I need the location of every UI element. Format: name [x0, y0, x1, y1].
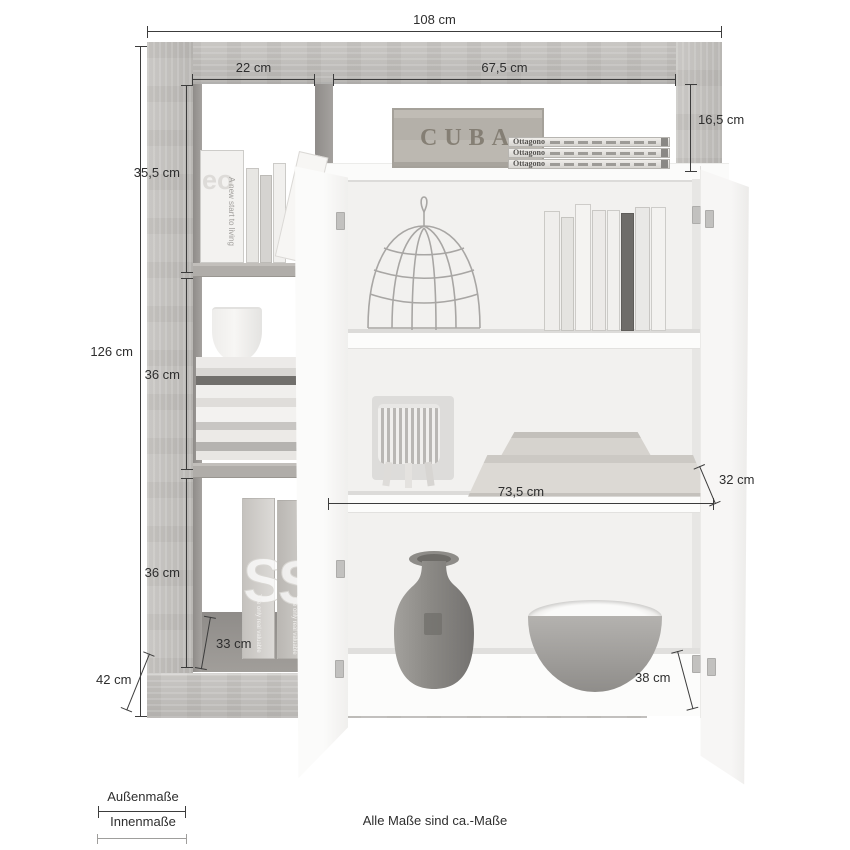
door-hinge: [336, 560, 345, 578]
magazine-issue-block: [661, 160, 668, 168]
book-spine: [635, 207, 650, 331]
door-hinge: [705, 210, 714, 228]
book-spine: [592, 210, 606, 331]
magazine: Ottagono: [508, 137, 670, 147]
dim-section-top-height-line: [186, 85, 187, 273]
dim-section-middle-height-label: 36 cm: [120, 367, 180, 382]
book-spine: [575, 204, 591, 331]
magazine-pile: Ottagono Ottagono Ottagono: [508, 137, 670, 170]
dim-height-total-label: 126 cm: [75, 344, 133, 359]
magazine: Ottagono: [508, 159, 670, 169]
magazine-issue-block: [661, 149, 668, 157]
book-group-shelf-top: [544, 202, 676, 331]
dim-left-column-width-line: [192, 79, 315, 80]
book-spine-dark: [621, 213, 634, 331]
magazine-text-lines: [550, 141, 656, 144]
dim-section-middle-height-line: [186, 278, 187, 470]
door-hinge: [707, 658, 716, 676]
dim-left-shelf-depth-label: 33 cm: [216, 636, 251, 651]
legend-outer-label: Außenmaße: [98, 789, 188, 804]
dim-niche-height-line: [690, 84, 691, 172]
dim-bottom-shelf-depth-label: 38 cm: [635, 670, 670, 685]
footnote: Alle Maße sind ca.-Maße: [300, 813, 570, 828]
book-spine: [260, 175, 272, 263]
wire-cloche: [358, 182, 490, 334]
dim-left-column-width-label: 22 cm: [192, 60, 315, 75]
cabinet-right-wall: [692, 179, 700, 657]
magazine-text-lines: [550, 163, 656, 166]
door-hinge: [336, 212, 345, 230]
cup: [212, 307, 262, 361]
magazine-issue-block: [661, 138, 668, 146]
dim-shelf-depth-label: 32 cm: [719, 472, 754, 487]
tall-book: S The only real valuable: [242, 498, 275, 659]
legend-inner-label: Innenmaße: [98, 814, 188, 829]
dim-niche-width-label: 67,5 cm: [333, 60, 676, 75]
crate-label: CUBA: [420, 125, 516, 152]
legend-inner-line: [97, 838, 187, 839]
magazine-text-lines: [550, 152, 656, 155]
book-large-white: eo A new start to living: [200, 150, 244, 263]
dim-niche-height-label: 16,5 cm: [698, 112, 744, 127]
furniture-dimension-diagram: eo A new start to living S The only real…: [0, 0, 850, 850]
dim-width-total-label: 108 cm: [147, 12, 722, 27]
book-spine: [561, 217, 574, 331]
magazine-title: Ottagono: [509, 149, 545, 157]
dim-width-total-line: [147, 31, 722, 32]
magazine: Ottagono: [508, 148, 670, 158]
striped-plant-pot: [378, 404, 440, 464]
dim-inner-width-label: 73,5 cm: [328, 484, 714, 499]
bottle-vase: [386, 549, 482, 694]
door-hinge: [335, 660, 344, 678]
frame-right-stile: [676, 42, 722, 174]
dim-section-bottom-height-line: [186, 478, 187, 668]
hinge: [692, 206, 701, 224]
tall-book-caption: The only real valuable: [291, 596, 297, 655]
book-spine: [651, 207, 666, 331]
dim-base-depth-label: 42 cm: [96, 672, 131, 687]
dim-section-top-height-label: 35,5 cm: [118, 165, 180, 180]
book-spine: [544, 211, 560, 331]
hinge: [692, 655, 701, 673]
magazine-title: Ottagono: [509, 160, 545, 168]
tall-book-caption: The only real valuable: [255, 594, 261, 653]
magazine-title: Ottagono: [509, 138, 545, 146]
dim-section-bottom-height-label: 36 cm: [120, 565, 180, 580]
dim-inner-width-line: [328, 503, 714, 504]
book-spine: [246, 168, 259, 263]
legend-outer-line: [98, 811, 186, 812]
dim-niche-width-line: [333, 79, 676, 80]
book-spine-title: A new start to living: [227, 177, 236, 246]
book-spine: [607, 210, 620, 331]
